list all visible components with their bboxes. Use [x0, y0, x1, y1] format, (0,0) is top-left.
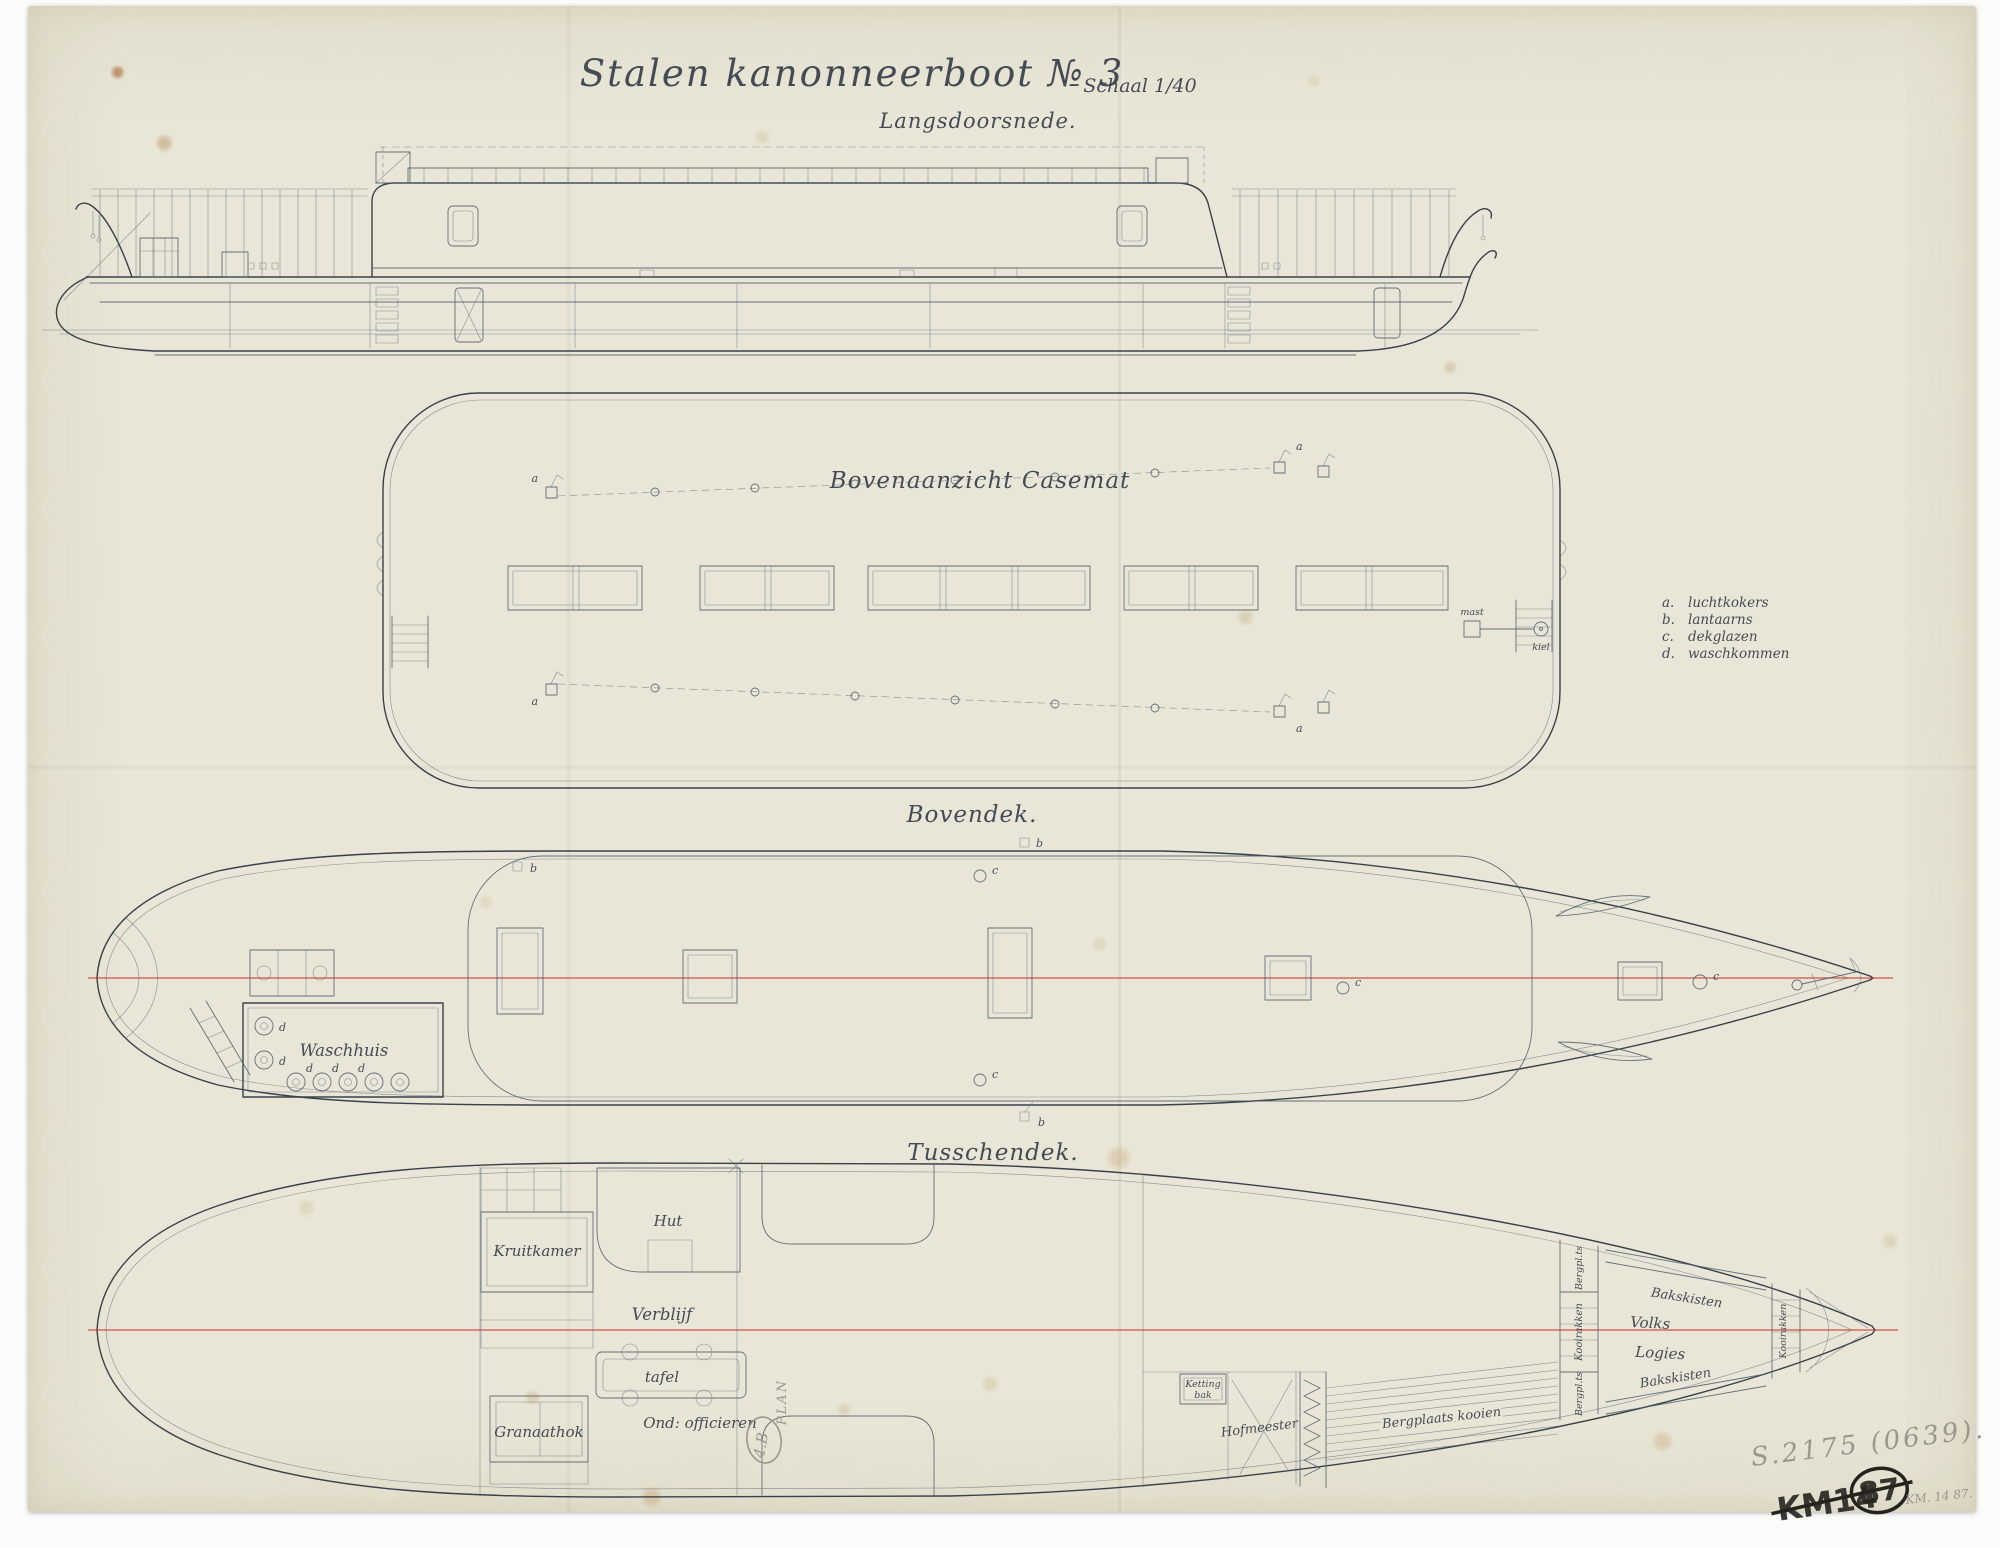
bow-davit — [1440, 209, 1491, 277]
marker-b: b — [1036, 837, 1043, 850]
verblijf-label: Verblijf — [632, 1305, 695, 1324]
legend-label: waschkommen — [1688, 646, 1789, 662]
casemate-top-view: Bovenaanzicht Casemat a a a a — [377, 393, 1789, 788]
logies-label: Logies — [1634, 1343, 1686, 1364]
casemate-door-panel — [1122, 211, 1142, 241]
marker-d: d — [279, 1021, 286, 1034]
casemate-ladders — [377, 532, 1566, 668]
blueprint-drawing: Stalen kanonneerboot № 3 Schaal 1/40 Lan… — [0, 0, 2000, 1548]
casemate-view-label: Bovenaanzicht Casemat — [829, 468, 1131, 494]
legend-label: dekglazen — [1688, 629, 1758, 645]
bakskisten-label: Bakskisten — [1638, 1366, 1712, 1392]
marker-b: b — [530, 862, 537, 875]
marker-c: c — [1355, 976, 1361, 989]
legend-label: lantaarns — [1688, 612, 1753, 628]
washhouse: Waschhuis d d d d d — [243, 1003, 443, 1097]
plan-code-note: 4.B — [750, 1431, 772, 1460]
casemate-door — [448, 206, 478, 246]
marker-c: c — [992, 864, 998, 877]
officer-quarters: Kruitkamer Hut Verblijf tafel Ond: offic… — [481, 1159, 757, 1484]
windlass — [250, 950, 334, 996]
anchor-ring — [1792, 980, 1802, 990]
mess-chest-row — [1606, 1250, 1766, 1290]
bergplts-label: Bergpl.ts — [1574, 1246, 1585, 1291]
bergplts-label: Bergpl.ts — [1574, 1372, 1585, 1417]
vent-marker-a: a — [1296, 440, 1303, 453]
hull-profile — [56, 251, 1496, 351]
legend-key: c. — [1662, 629, 1674, 645]
marker-d: d — [332, 1062, 339, 1075]
hull-ladder — [1228, 287, 1250, 343]
tackle-block — [91, 234, 95, 238]
companionway-brace — [376, 152, 410, 183]
bak-label: bak — [1194, 1390, 1212, 1401]
km-pencil-note: KM. 14 87. — [1904, 1486, 1973, 1507]
vent-marker-a: a — [531, 472, 538, 485]
deck-hatches — [497, 928, 1662, 1018]
tackle-block — [97, 238, 101, 242]
kooirakken-label: Kooirakken — [1574, 1303, 1585, 1362]
tafel-label: tafel — [645, 1368, 679, 1386]
bergplaats-kooien-label: Bergplaats kooien — [1380, 1405, 1501, 1433]
granaathok-label: Granaathok — [494, 1423, 583, 1441]
stair-chevrons — [1304, 1380, 1320, 1476]
kiel-label: kiel — [1532, 642, 1549, 653]
tackle-block — [1481, 236, 1485, 240]
stern-rail — [92, 189, 368, 196]
stair-strip — [1300, 1372, 1326, 1488]
legend: a. luchtkokers b. lantaarns c. dekglazen… — [1662, 595, 1789, 662]
casemate-door — [1117, 206, 1147, 246]
stern-rail-stanchions — [100, 190, 352, 276]
tween-deck-view: Tusschendek. Kruitkamer Hut Verblijf taf… — [88, 1140, 1898, 1497]
marker-c: c — [1713, 970, 1719, 983]
door-mark — [729, 1159, 743, 1173]
title-block: Stalen kanonneerboot № 3 Schaal 1/40 Lan… — [580, 52, 1197, 133]
casemate-profile — [372, 183, 1227, 277]
kruitkamer-label: Kruitkamer — [492, 1242, 581, 1260]
legend-key: b. — [1662, 612, 1675, 628]
vent-marker-a: a — [531, 695, 538, 708]
side-elevation-view — [42, 147, 1538, 355]
casemate-skylights — [508, 566, 1448, 610]
companionway — [1156, 158, 1188, 183]
skylight-slats — [424, 168, 1144, 183]
hull-door-brace — [457, 290, 481, 340]
volks-label: Volks — [1630, 1313, 1671, 1333]
stern-davit-tackle — [64, 211, 150, 300]
lantern-markers: b b b — [513, 837, 1045, 1129]
vent-marker-a: a — [1296, 722, 1303, 735]
ketting-label: Ketting — [1184, 1379, 1220, 1390]
awning-drops — [383, 147, 1204, 183]
hull-ladder — [376, 287, 398, 343]
marker-d: d — [306, 1062, 313, 1075]
legend-label: luchtkokers — [1688, 595, 1769, 611]
kooirakken-label: Kooirakken — [1778, 1304, 1789, 1360]
drawing-title: Stalen kanonneerboot № 3 — [580, 52, 1125, 95]
casemate-door-panel — [453, 211, 473, 241]
skylight-band — [408, 168, 1148, 183]
tween-deck-label: Tusschendek. — [907, 1140, 1078, 1166]
hull-seams — [90, 283, 1462, 355]
spar — [1556, 896, 1650, 916]
deck-fittings — [640, 268, 1017, 277]
hull-door — [1374, 288, 1400, 338]
bakskisten-label: Bakskisten — [1649, 1285, 1723, 1311]
marker-b: b — [1038, 1116, 1045, 1129]
ond-officieren-label: Ond: officieren — [643, 1414, 757, 1432]
km-stamp: KM14 87 — [1767, 1464, 1916, 1530]
hofmeester-label: Hofmeester — [1219, 1416, 1300, 1441]
waterline — [42, 330, 1538, 334]
washhouse-label: Waschhuis — [300, 1041, 389, 1060]
legend-key: d. — [1662, 646, 1675, 662]
upper-deck-view: Bovendek. c c c c b b b Waschhuis — [88, 802, 1893, 1129]
archive-annotations: 4.B PLAN S.2175 (0639). KM14 87 KM. 14 8… — [744, 1379, 1987, 1530]
bow-rail — [1232, 189, 1456, 196]
marker-d: d — [279, 1055, 286, 1068]
hut-label: Hut — [653, 1212, 684, 1230]
marker-d: d — [358, 1062, 365, 1075]
upper-deck-label: Bovendek. — [906, 802, 1038, 828]
bow-rail-stanchions — [1240, 190, 1449, 276]
drawing-subtitle: Langsdoorsnede. — [878, 109, 1076, 133]
marker-c: c — [992, 1068, 998, 1081]
casemate-outline — [383, 393, 1560, 788]
drawing-scale: Schaal 1/40 — [1083, 75, 1196, 97]
legend-key: a. — [1662, 595, 1674, 611]
hull-frames — [230, 284, 1385, 348]
casemate-inner-line — [390, 400, 1553, 781]
mast-step: mast kiel — [1460, 607, 1549, 653]
mast-label: mast — [1460, 607, 1484, 618]
plan-word-note: PLAN — [775, 1379, 790, 1426]
inventory-number-pencil: S.2175 (0639). — [1749, 1414, 1987, 1473]
